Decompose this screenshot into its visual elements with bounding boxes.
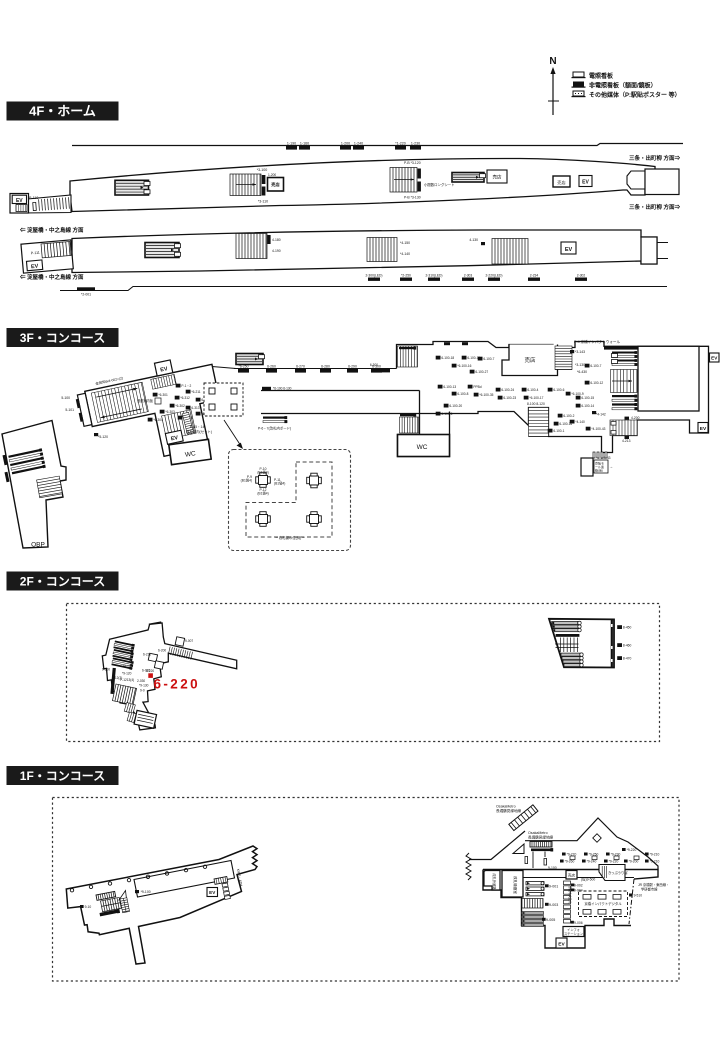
svg-text:6-100-4: 6-100-4: [527, 388, 538, 392]
svg-text:*9-220: *9-220: [627, 848, 637, 852]
svg-text:6-260: 6-260: [267, 364, 276, 368]
svg-text:*9-220: *9-220: [609, 860, 619, 864]
svg-text:*6-110: *6-110: [123, 665, 132, 669]
svg-text:EV: EV: [209, 890, 216, 895]
svg-text:3F・コンコース: 3F・コンコース: [20, 331, 105, 345]
svg-text:*4-150: *4-150: [400, 241, 410, 245]
svg-text:EV: EV: [700, 426, 707, 432]
svg-text:*6-211: *6-211: [191, 390, 200, 394]
svg-text:*9-240: *9-240: [587, 860, 597, 864]
svg-text:2-220(LED): 2-220(LED): [485, 273, 502, 277]
svg-text:*9-210: *9-210: [650, 853, 660, 857]
svg-text:1-160: 1-160: [300, 142, 309, 146]
svg-text:6-100-15: 6-100-15: [581, 396, 594, 400]
svg-text:OsakaMetro: OsakaMetro: [528, 831, 548, 835]
svg-text:5-101: 5-101: [65, 408, 74, 412]
svg-text:EV: EV: [711, 356, 718, 361]
svg-text:*6-302: *6-302: [175, 404, 185, 408]
svg-text:2-310(LED): 2-310(LED): [425, 273, 442, 277]
svg-text:4-130: 4-130: [469, 238, 478, 242]
svg-text:⇐ 淀屋橋・中之島線 方面: ⇐ 淀屋橋・中之島線 方面: [19, 226, 84, 234]
svg-text:6-100-27: 6-100-27: [475, 370, 488, 374]
svg-text:長堀鶴見緑地線: 長堀鶴見緑地線: [496, 808, 522, 813]
svg-text:9-005: 9-005: [546, 918, 555, 922]
svg-text:*3-143: *3-143: [575, 350, 585, 354]
svg-text:小間数ロングシート: 小間数ロングシート: [424, 182, 455, 187]
svg-text:鉄道案内板: 鉄道案内板: [137, 398, 154, 403]
svg-text:*4-100-43: *4-100-43: [591, 427, 605, 431]
svg-text:9-0: 9-0: [140, 689, 145, 693]
svg-text:*3-130: *3-130: [575, 363, 585, 367]
svg-text:売店: 売店: [557, 179, 565, 186]
svg-text:P-4 京橋インパクトウォール: P-4 京橋インパクトウォール: [574, 339, 621, 344]
svg-text:6-100-6: 6-100-6: [553, 388, 564, 392]
svg-text:WC: WC: [417, 444, 428, 451]
svg-text:6-100-13: 6-100-13: [443, 385, 456, 389]
svg-text:9-006: 9-006: [574, 921, 583, 925]
svg-text:(B1袋4): (B1袋4): [257, 470, 268, 475]
svg-text:6-270: 6-270: [296, 364, 305, 368]
svg-text:(B1袋4): (B1袋4): [274, 481, 285, 486]
svg-text:*6-303: *6-303: [165, 410, 175, 414]
svg-text:⇐ 淀屋橋・中之島線 方面: ⇐ 淀屋橋・中之島線 方面: [19, 273, 84, 281]
svg-text:非電照看板（額面/鏡板）: 非電照看板（額面/鏡板）: [589, 82, 657, 90]
svg-text:*2-001: *2-001: [81, 293, 91, 297]
svg-text:*9-120: *9-120: [122, 672, 132, 676]
svg-text:*6-301: *6-301: [158, 393, 168, 397]
svg-text:6-100-20: 6-100-20: [449, 404, 462, 408]
svg-text:京橋インパクトデジタル: 京橋インパクトデジタル: [584, 901, 622, 906]
svg-text:8-100 8-120: 8-100 8-120: [527, 402, 545, 406]
svg-text:(仮)9-500: (仮)9-500: [581, 877, 595, 882]
svg-text:2-303: 2-303: [464, 273, 473, 277]
svg-text:PPBd: PPBd: [473, 385, 481, 389]
svg-text:8-470: 8-470: [623, 657, 632, 661]
svg-text:1-190: 1-190: [287, 142, 296, 146]
svg-text:1-230: 1-230: [411, 142, 420, 146]
svg-text:9-002: 9-002: [574, 884, 583, 888]
svg-text:*6-100-17: *6-100-17: [529, 396, 543, 400]
svg-text:*6-304: *6-304: [153, 418, 163, 422]
svg-text:6-100-7: 6-100-7: [483, 357, 494, 361]
svg-text:売店: 売店: [493, 174, 502, 181]
svg-text:三条・出町柳 方面⇒: 三条・出町柳 方面⇒: [629, 203, 681, 211]
svg-text:学研都市線: 学研都市線: [641, 887, 658, 892]
svg-text:*4-140: *4-140: [400, 252, 410, 256]
svg-text:*6-250: *6-250: [239, 364, 249, 368]
svg-text:JR 京橋駅・東西線・: JR 京橋駅・東西線・: [638, 882, 669, 887]
svg-text:*9-210: *9-210: [650, 860, 660, 864]
svg-text:P-1・2: P-1・2: [181, 384, 191, 388]
svg-text:EV: EV: [31, 264, 39, 271]
svg-text:1F・コンコース: 1F・コンコース: [20, 769, 105, 783]
svg-text:8-450: 8-450: [623, 626, 632, 630]
svg-text:P-15・14: P-15・14: [190, 425, 204, 429]
svg-text:*3-100: *3-100: [257, 168, 268, 172]
svg-text:6-100-2: 6-100-2: [563, 414, 574, 418]
svg-text:9-300: 9-300: [102, 668, 110, 672]
svg-text:2-302: 2-302: [577, 273, 586, 277]
svg-text:P-6・7(改札内ボード): P-6・7(改札内ボード): [258, 426, 291, 431]
svg-text:絡(仮): 絡(仮): [595, 468, 603, 473]
svg-text:ステーション: ステーション: [564, 931, 583, 936]
svg-text:*6-312: *6-312: [180, 396, 190, 400]
svg-text:4F・ホーム: 4F・ホーム: [29, 104, 96, 119]
svg-text:4-200: 4-200: [631, 416, 640, 420]
svg-text:*1-220: *1-220: [395, 142, 406, 146]
svg-text:9-001: 9-001: [549, 885, 558, 889]
svg-text:6-220: 6-220: [146, 669, 154, 673]
svg-text:*2-250: *2-250: [401, 273, 411, 277]
svg-text:2-234: 2-234: [530, 273, 539, 277]
svg-text:*4-140: *4-140: [575, 420, 585, 424]
svg-text:6-100-8: 6-100-8: [457, 392, 468, 396]
svg-text:→: →: [609, 464, 613, 469]
svg-text:売店: 売店: [568, 873, 576, 878]
svg-text:6-290: 6-290: [348, 364, 357, 368]
svg-text:4-190: 4-190: [272, 249, 281, 253]
svg-text:2-300(LED): 2-300(LED): [365, 273, 382, 277]
svg-text:6-280: 6-280: [321, 364, 330, 368]
svg-text:EV: EV: [558, 942, 565, 948]
svg-text:*9-100: *9-100: [141, 890, 151, 894]
svg-text:P-110: P-110: [29, 196, 38, 200]
svg-text:9-510: 9-510: [634, 894, 643, 898]
svg-text:*6-100-35: *6-100-35: [479, 393, 493, 397]
svg-text:*9-130: *9-130: [139, 684, 149, 688]
svg-text:*3-110: *3-110: [258, 200, 268, 204]
svg-text:4-213: 4-213: [622, 439, 631, 443]
svg-text:6-100-23: 6-100-23: [503, 396, 516, 400]
svg-text:P-B *3-130: P-B *3-130: [404, 196, 421, 200]
svg-text:長堀鶴見緑地線: 長堀鶴見緑地線: [528, 835, 554, 840]
svg-text:6-100-1: 6-100-1: [553, 429, 564, 433]
svg-text:(B1袋4): (B1袋4): [257, 491, 268, 496]
svg-text:OsakaMetro: OsakaMetro: [496, 805, 516, 809]
svg-text:6-300: 6-300: [370, 363, 378, 367]
svg-text:P-B *3-120: P-B *3-120: [404, 161, 421, 165]
svg-text:*6-100 6-130: *6-100 6-130: [273, 387, 292, 391]
svg-text:EV: EV: [582, 179, 589, 185]
svg-text:*5-120: *5-120: [98, 435, 108, 439]
svg-text:5-100: 5-100: [61, 396, 70, 400]
svg-text:1-240: 1-240: [354, 142, 363, 146]
svg-text:6-313: 6-313: [191, 406, 199, 410]
svg-text:三条・出町柳 方面⇒: 三条・出町柳 方面⇒: [629, 154, 681, 162]
svg-text:1-200: 1-200: [341, 142, 350, 146]
svg-text:9-10: 9-10: [85, 905, 92, 909]
svg-text:─ 改札機の位(例) ─: ─ 改札機の位(例) ─: [274, 535, 305, 540]
svg-text:EV: EV: [565, 247, 573, 253]
svg-text:改札外通路: 改札外通路: [492, 874, 497, 891]
svg-text:*6-430: *6-430: [577, 370, 587, 374]
svg-text:EV: EV: [16, 198, 23, 204]
svg-text:*9-260: *9-260: [565, 860, 575, 864]
svg-text:6-220: 6-220: [154, 677, 201, 692]
svg-text:6-210: 6-210: [143, 653, 151, 657]
svg-text:(B1袋4): (B1袋4): [241, 478, 252, 483]
svg-text:*4-142: *4-142: [596, 413, 606, 417]
svg-text:改札機器室: 改札機器室: [513, 876, 518, 894]
svg-text:6-100-7: 6-100-7: [590, 364, 601, 368]
svg-text:N: N: [549, 56, 556, 67]
svg-text:その他媒体（P:駅貼ポスター 等）: その他媒体（P:駅貼ポスター 等）: [589, 91, 681, 99]
svg-text:2F・コンコース: 2F・コンコース: [20, 574, 105, 588]
svg-text:8-460: 8-460: [623, 644, 632, 648]
svg-text:OBP: OBP: [31, 542, 45, 549]
svg-text:電照看板: 電照看板: [589, 72, 614, 80]
svg-text:6-100-24: 6-100-24: [501, 388, 514, 392]
svg-text:きっぷうりば: きっぷうりば: [608, 870, 628, 875]
svg-text:売店: 売店: [524, 356, 536, 364]
svg-text:6-100-18: 6-100-18: [441, 356, 454, 360]
svg-text:*9-200: *9-200: [629, 860, 639, 864]
svg-text:P-1213(4): P-1213(4): [120, 678, 134, 682]
svg-text:売店: 売店: [271, 181, 280, 188]
svg-text:2-030: 2-030: [137, 679, 145, 683]
svg-text:6-100-14: 6-100-14: [581, 404, 594, 408]
svg-text:6-100-5: 6-100-5: [441, 412, 452, 416]
svg-text:4-180: 4-180: [272, 238, 281, 242]
svg-text:改札口内(セット): 改札口内(セット): [186, 429, 212, 434]
svg-text:P-111: P-111: [31, 251, 40, 256]
svg-text:*6-100-16: *6-100-16: [457, 364, 471, 368]
svg-text:9-007: 9-007: [185, 639, 193, 643]
svg-text:6-100-12: 6-100-12: [590, 381, 603, 385]
svg-text:9-003: 9-003: [549, 903, 558, 907]
svg-text:1-200: 1-200: [268, 173, 276, 177]
svg-text:6-200: 6-200: [158, 649, 166, 653]
